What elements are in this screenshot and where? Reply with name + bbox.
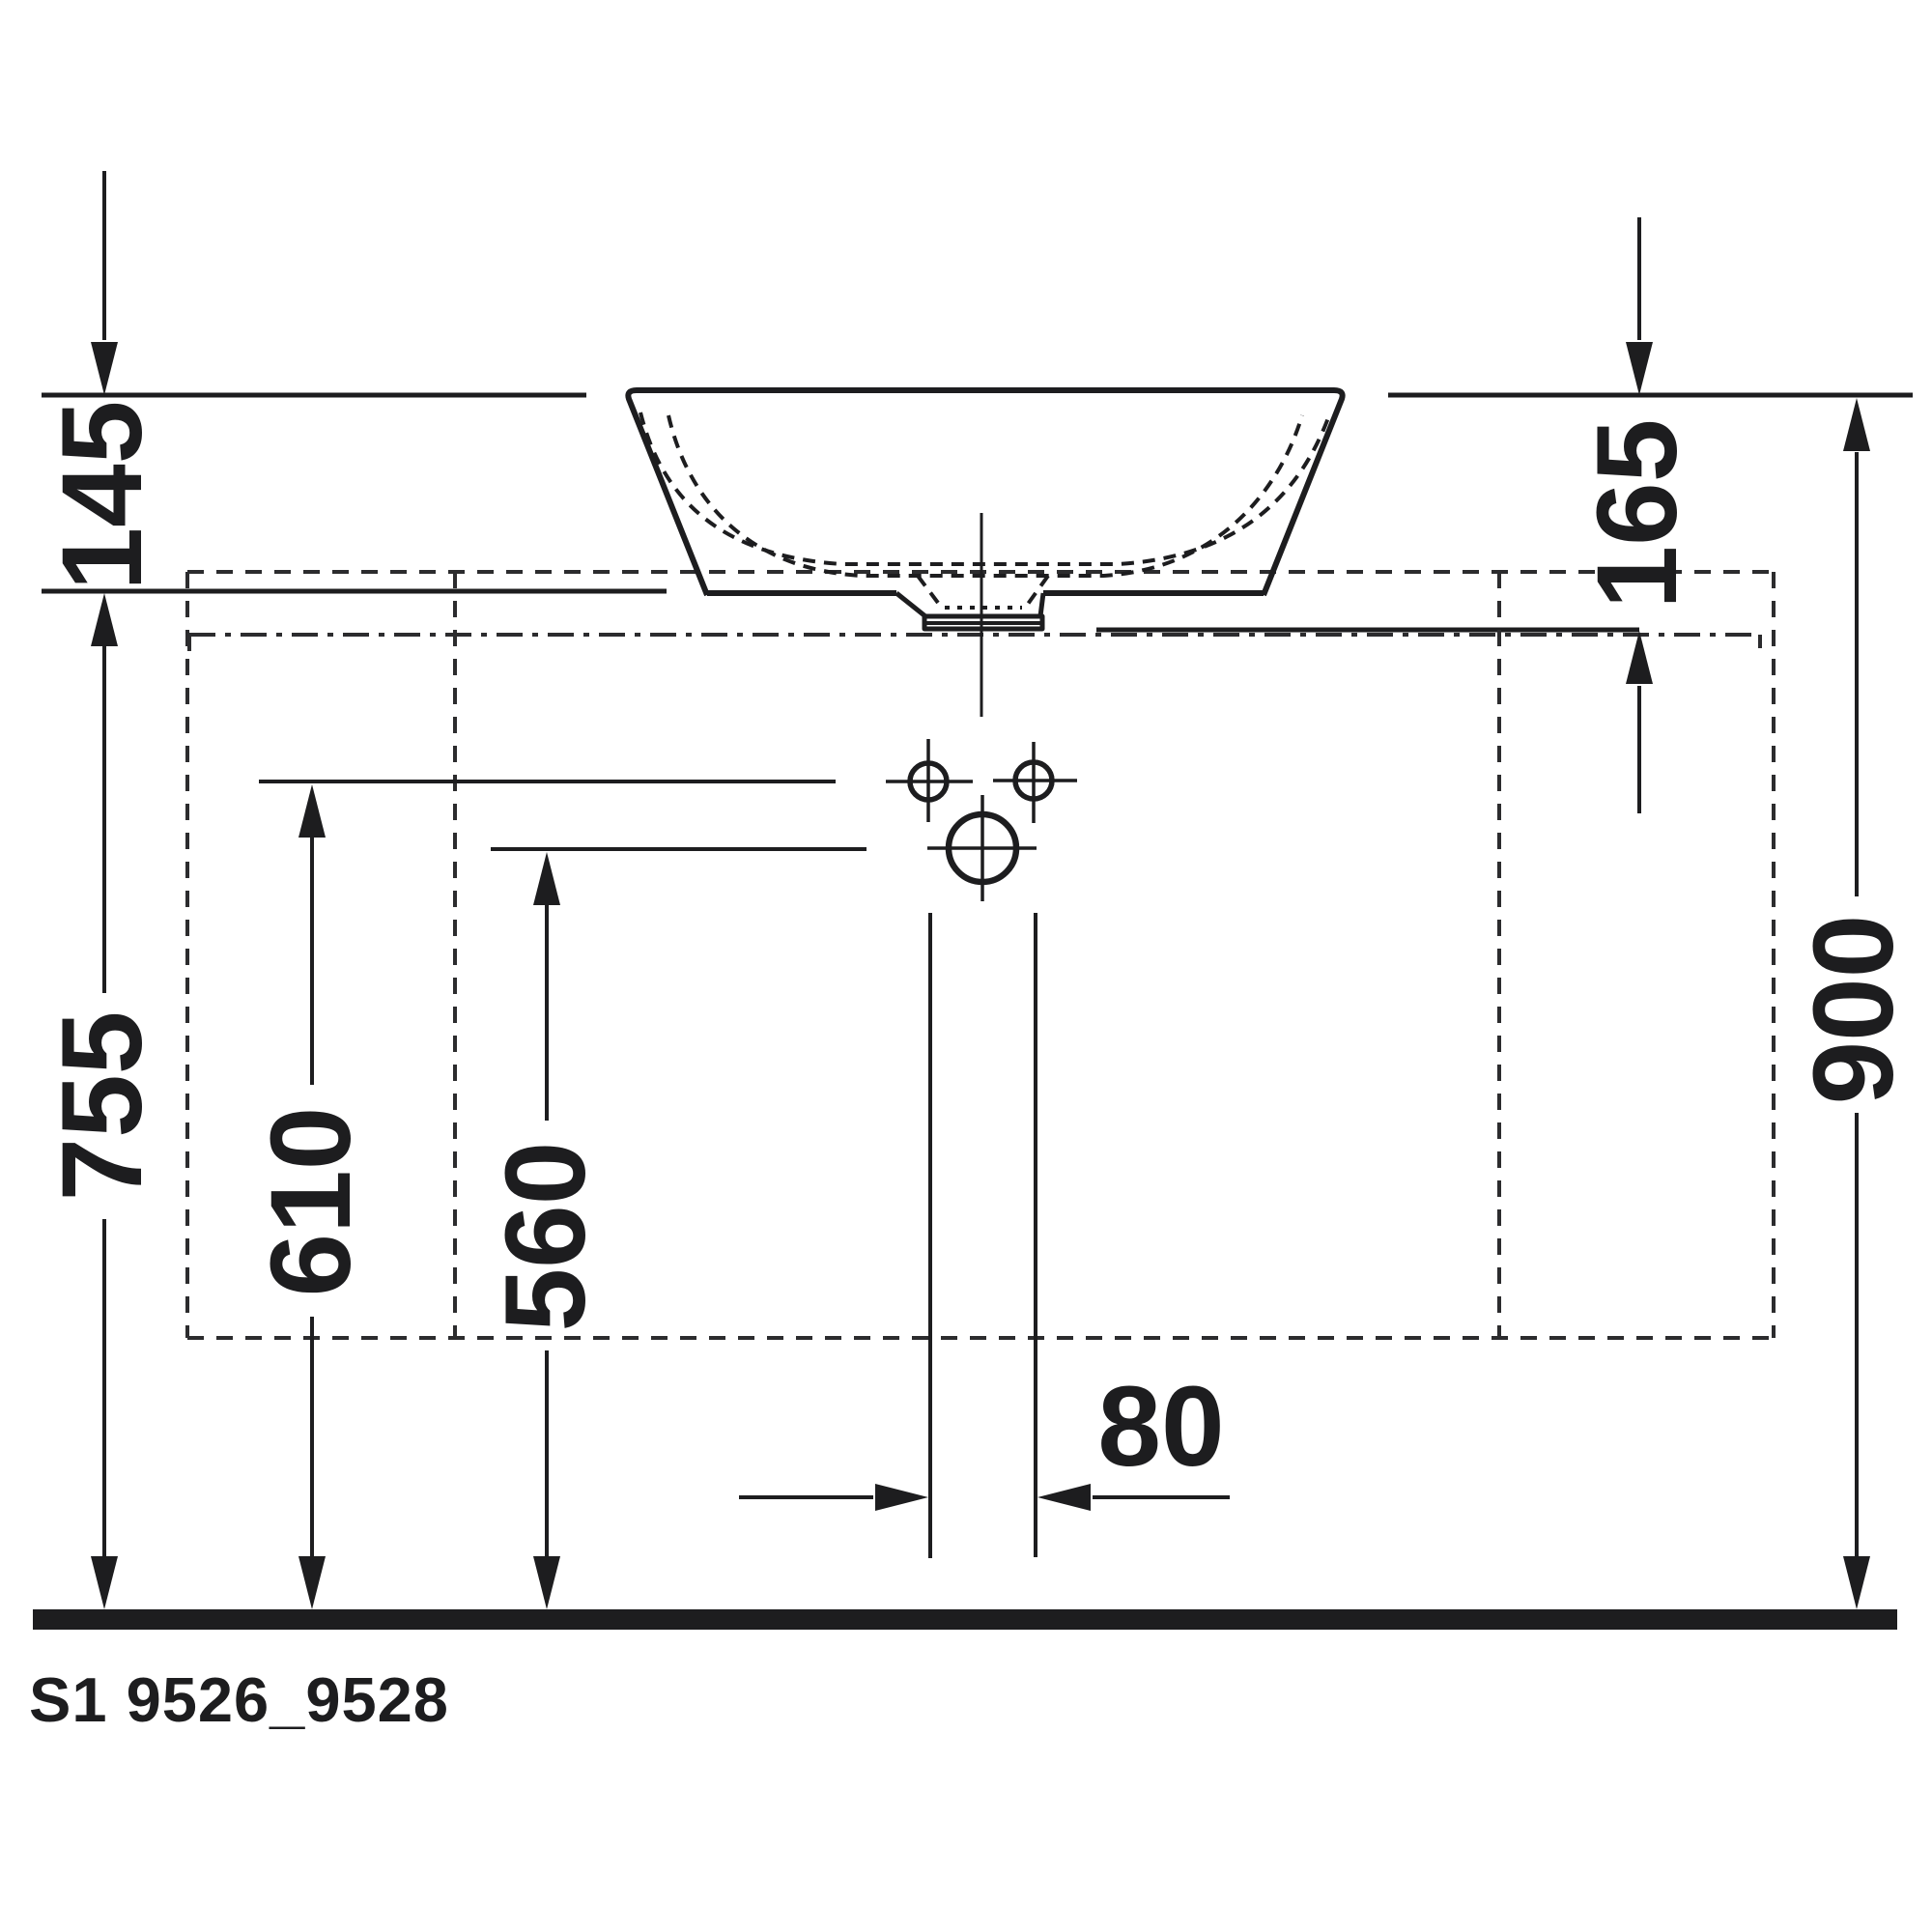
dim-label-900: 900: [1797, 915, 1911, 1105]
dim-label-560: 560: [489, 1142, 603, 1332]
arrow-165-down: [1626, 342, 1653, 395]
arrow-610-down: [298, 1556, 326, 1609]
arrow-560-down: [533, 1556, 560, 1609]
drawing-code: S1 9526_9528: [29, 1668, 449, 1731]
technical-drawing-page: 145 165 755 610 560 900 80 S1 9526_9528: [0, 0, 1932, 1932]
arrow-900-down: [1843, 1556, 1870, 1609]
dim-label-610: 610: [254, 1107, 368, 1297]
arrow-755-up: [91, 593, 118, 646]
arrow-610-up: [298, 784, 326, 838]
inner-contour-outer: [640, 412, 1330, 564]
crosshair-ticks: [886, 739, 1077, 901]
arrow-165-up: [1626, 631, 1653, 684]
faucet-holes: [886, 739, 1077, 1558]
arrow-80-right: [875, 1484, 928, 1511]
counter-underside-dashdot-line: [189, 635, 1760, 651]
dim-label-165: 165: [1580, 419, 1694, 610]
dim-label-755: 755: [45, 1011, 159, 1202]
drain-funnel-left-dashed: [918, 576, 941, 607]
arrow-560-up: [533, 852, 560, 905]
basin-outline: [628, 390, 1342, 595]
dim-label-145: 145: [45, 401, 159, 591]
arrow-900-up: [1843, 398, 1870, 451]
floor-line: [33, 1609, 1897, 1630]
arrow-755-down: [91, 1556, 118, 1609]
arrow-145-down: [91, 342, 118, 395]
dim-label-80: 80: [1097, 1370, 1224, 1484]
arrow-80-left: [1037, 1484, 1091, 1511]
washbasin-bowl: [628, 390, 1342, 717]
drain-left-side: [896, 593, 925, 616]
basin-inner-contours-dashed: [640, 412, 1330, 608]
drain-right-side: [1040, 593, 1043, 616]
washbasin-installation-diagram: [0, 0, 1932, 1932]
